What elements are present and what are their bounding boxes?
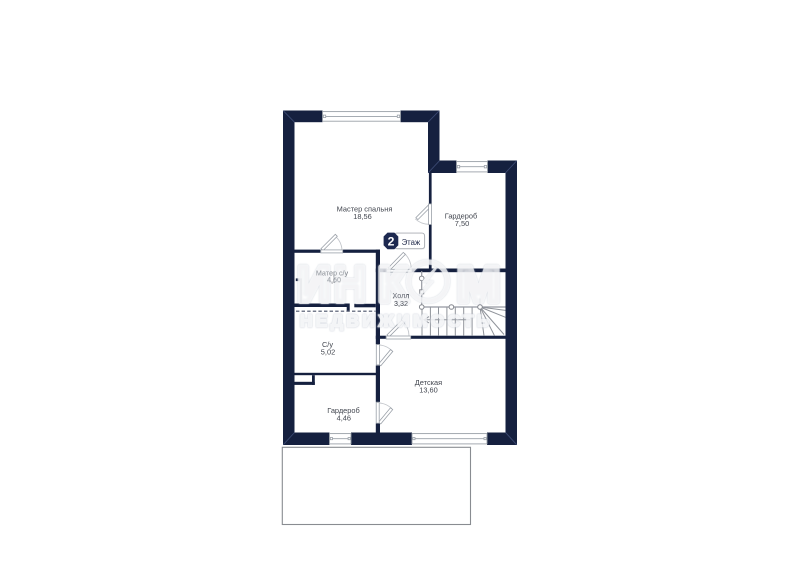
svg-text:3,32: 3,32 xyxy=(394,299,408,308)
svg-text:Этаж: Этаж xyxy=(402,238,421,247)
svg-text:18,56: 18,56 xyxy=(353,212,372,221)
svg-text:4,46: 4,46 xyxy=(337,414,351,423)
svg-text:4,50: 4,50 xyxy=(327,275,341,284)
svg-text:НЕДВИЖИМОСТЬ: НЕДВИЖИМОСТЬ xyxy=(300,311,493,330)
svg-text:Н: Н xyxy=(334,257,366,313)
svg-text:М: М xyxy=(457,257,501,313)
svg-text:7,50: 7,50 xyxy=(455,219,469,228)
svg-text:5,02: 5,02 xyxy=(321,348,335,357)
svg-text:2: 2 xyxy=(388,234,395,248)
svg-text:13,60: 13,60 xyxy=(419,386,438,395)
svg-text:И: И xyxy=(297,257,331,313)
